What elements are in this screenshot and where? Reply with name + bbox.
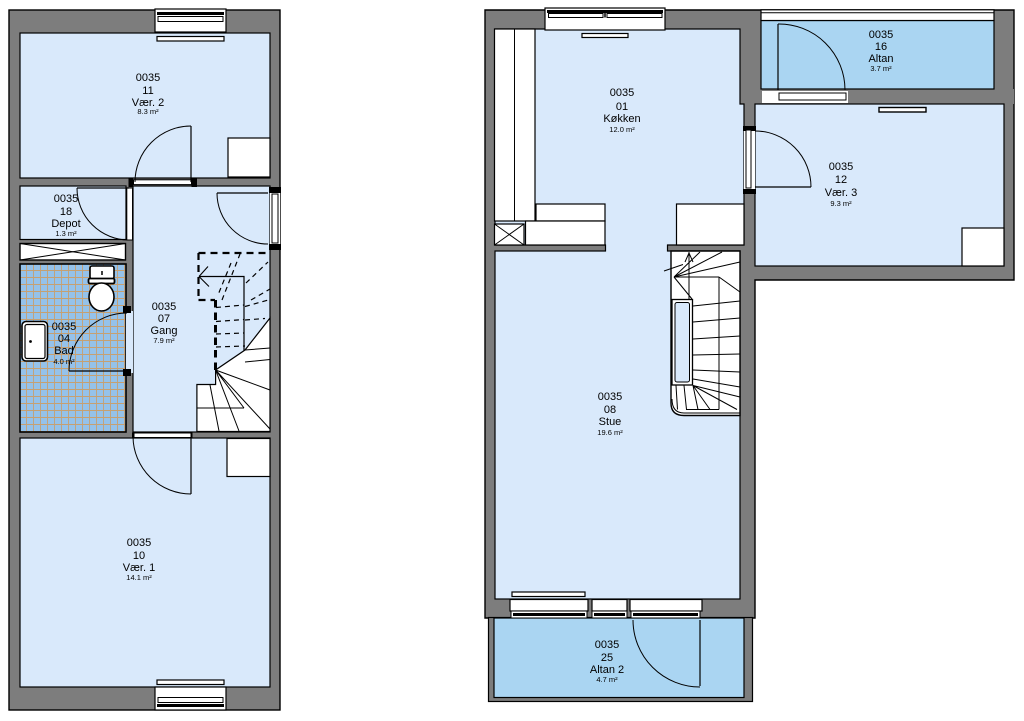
svg-text:Stue: Stue [599,416,622,428]
svg-text:0035: 0035 [136,72,160,84]
svg-text:10: 10 [133,550,145,562]
svg-text:0035: 0035 [54,193,78,205]
svg-text:0035: 0035 [595,639,619,651]
svg-text:0035: 0035 [152,301,176,313]
svg-text:12.0 m²: 12.0 m² [609,125,635,134]
svg-text:9.3 m²: 9.3 m² [830,199,852,208]
svg-text:16: 16 [875,41,887,53]
svg-text:7.9 m²: 7.9 m² [153,336,175,345]
svg-text:11: 11 [142,85,153,97]
svg-text:4.0 m²: 4.0 m² [53,357,75,366]
svg-text:12: 12 [835,174,847,186]
svg-text:25: 25 [601,652,613,664]
svg-text:Køkken: Køkken [603,113,640,125]
svg-text:07: 07 [158,313,170,325]
svg-text:18: 18 [60,206,72,218]
svg-text:4.7 m²: 4.7 m² [596,675,618,684]
svg-text:0035: 0035 [52,321,76,333]
svg-text:0035: 0035 [127,537,151,549]
svg-text:Bad: Bad [54,345,74,357]
svg-text:0035: 0035 [829,161,853,173]
svg-text:08: 08 [604,404,616,416]
svg-text:19.6 m²: 19.6 m² [597,428,623,437]
svg-text:1.3 m²: 1.3 m² [55,229,77,238]
svg-text:Vær. 3: Vær. 3 [825,187,857,199]
svg-text:0035: 0035 [610,87,634,99]
svg-text:14.1 m²: 14.1 m² [126,573,152,582]
svg-text:3.7 m²: 3.7 m² [870,64,892,73]
svg-text:8.3 m²: 8.3 m² [137,107,159,116]
svg-text:04: 04 [58,333,70,345]
svg-text:0035: 0035 [869,29,893,41]
svg-text:01: 01 [616,101,628,113]
svg-text:0035: 0035 [598,391,622,403]
